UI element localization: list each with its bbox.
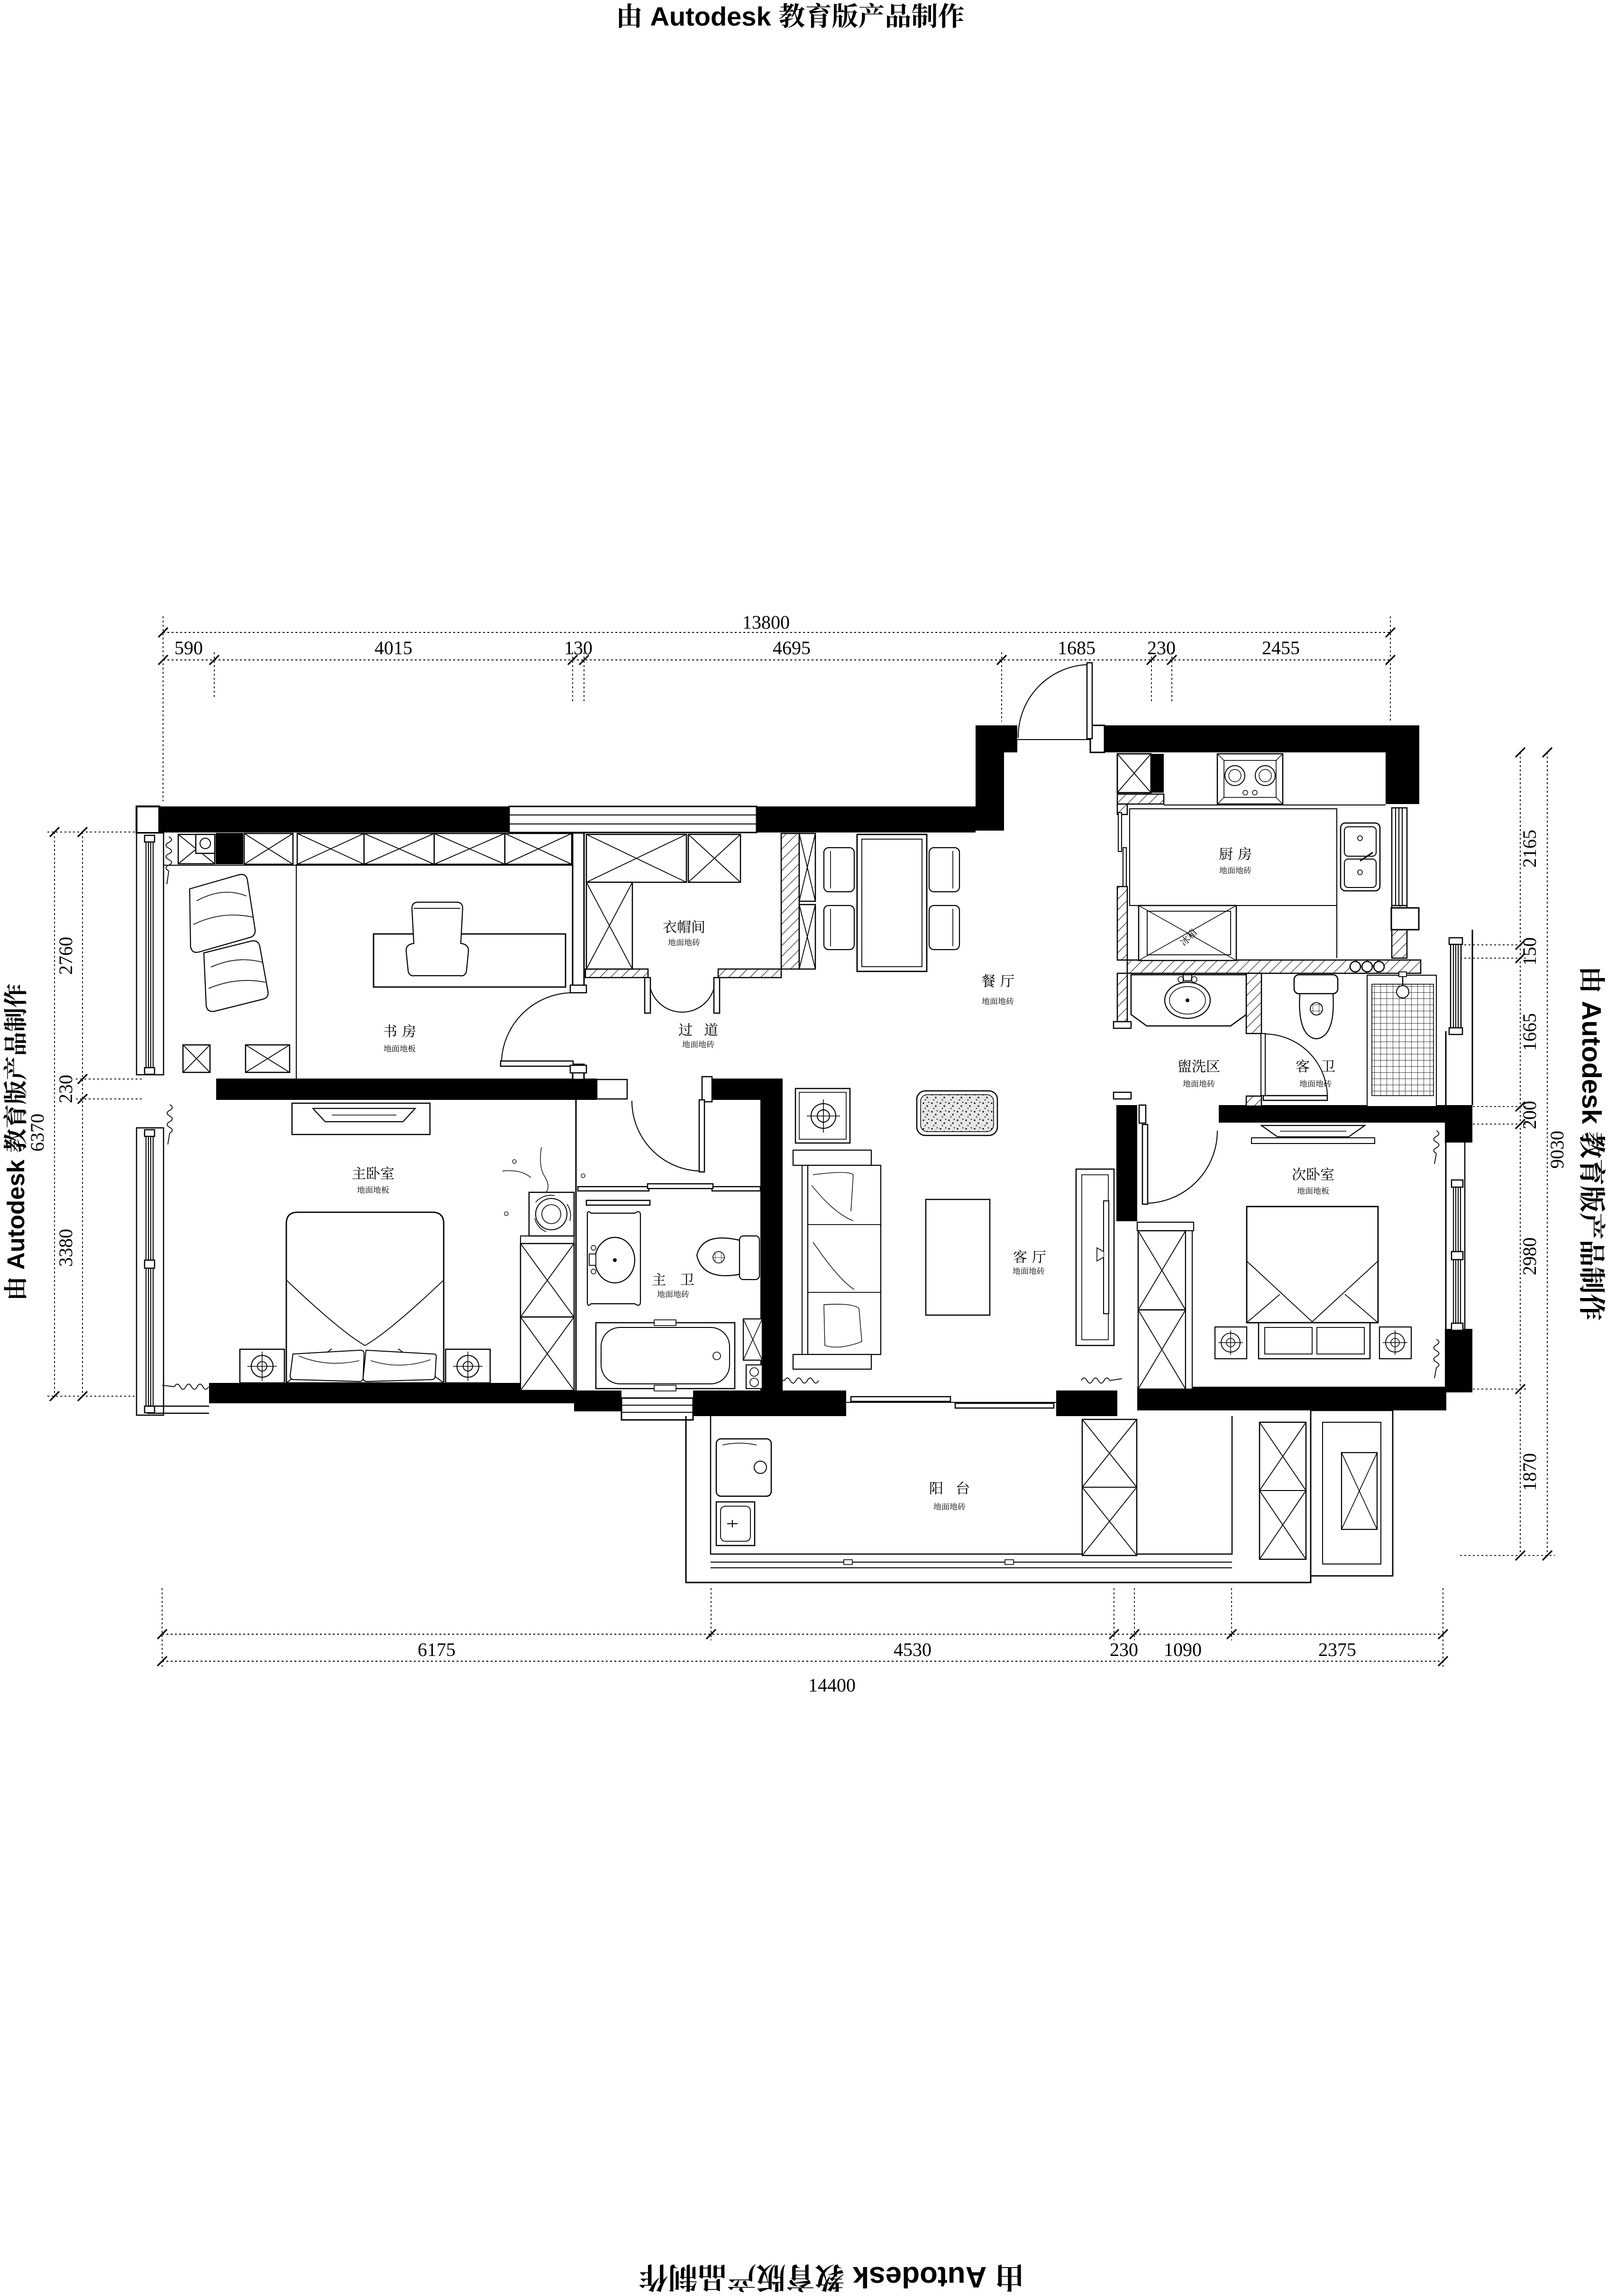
svg-text:2165: 2165 <box>1519 830 1540 868</box>
svg-text:1665: 1665 <box>1519 1013 1540 1051</box>
svg-text:130: 130 <box>564 637 593 659</box>
svg-text:4015: 4015 <box>374 637 412 659</box>
svg-text:150: 150 <box>1519 937 1540 966</box>
svg-text:2980: 2980 <box>1519 1237 1540 1275</box>
svg-text:4695: 4695 <box>773 637 811 659</box>
svg-text:13800: 13800 <box>742 612 790 633</box>
svg-text:6175: 6175 <box>418 1639 456 1660</box>
svg-text:Autodesk: Autodesk <box>650 1 771 31</box>
svg-text:1870: 1870 <box>1519 1453 1540 1491</box>
svg-text:14400: 14400 <box>808 1674 856 1696</box>
svg-text:2375: 2375 <box>1318 1639 1356 1660</box>
svg-text:2455: 2455 <box>1262 637 1300 659</box>
svg-text:2760: 2760 <box>55 937 76 975</box>
svg-text:230: 230 <box>55 1075 76 1103</box>
svg-text:590: 590 <box>174 637 203 659</box>
svg-text:Autodesk: Autodesk <box>852 2260 986 2293</box>
svg-text:230: 230 <box>1110 1639 1138 1660</box>
svg-text:6370: 6370 <box>27 1114 48 1152</box>
svg-text:200: 200 <box>1519 1101 1540 1129</box>
svg-text:9030: 9030 <box>1546 1131 1568 1169</box>
svg-text:1685: 1685 <box>1058 637 1096 659</box>
svg-text:4530: 4530 <box>894 1639 931 1660</box>
svg-text:230: 230 <box>1147 637 1176 659</box>
svg-text:3380: 3380 <box>55 1229 76 1267</box>
svg-text:Autodesk: Autodesk <box>2 1159 29 1270</box>
svg-text:Autodesk: Autodesk <box>1576 1001 1607 1124</box>
svg-text:1090: 1090 <box>1164 1639 1202 1660</box>
